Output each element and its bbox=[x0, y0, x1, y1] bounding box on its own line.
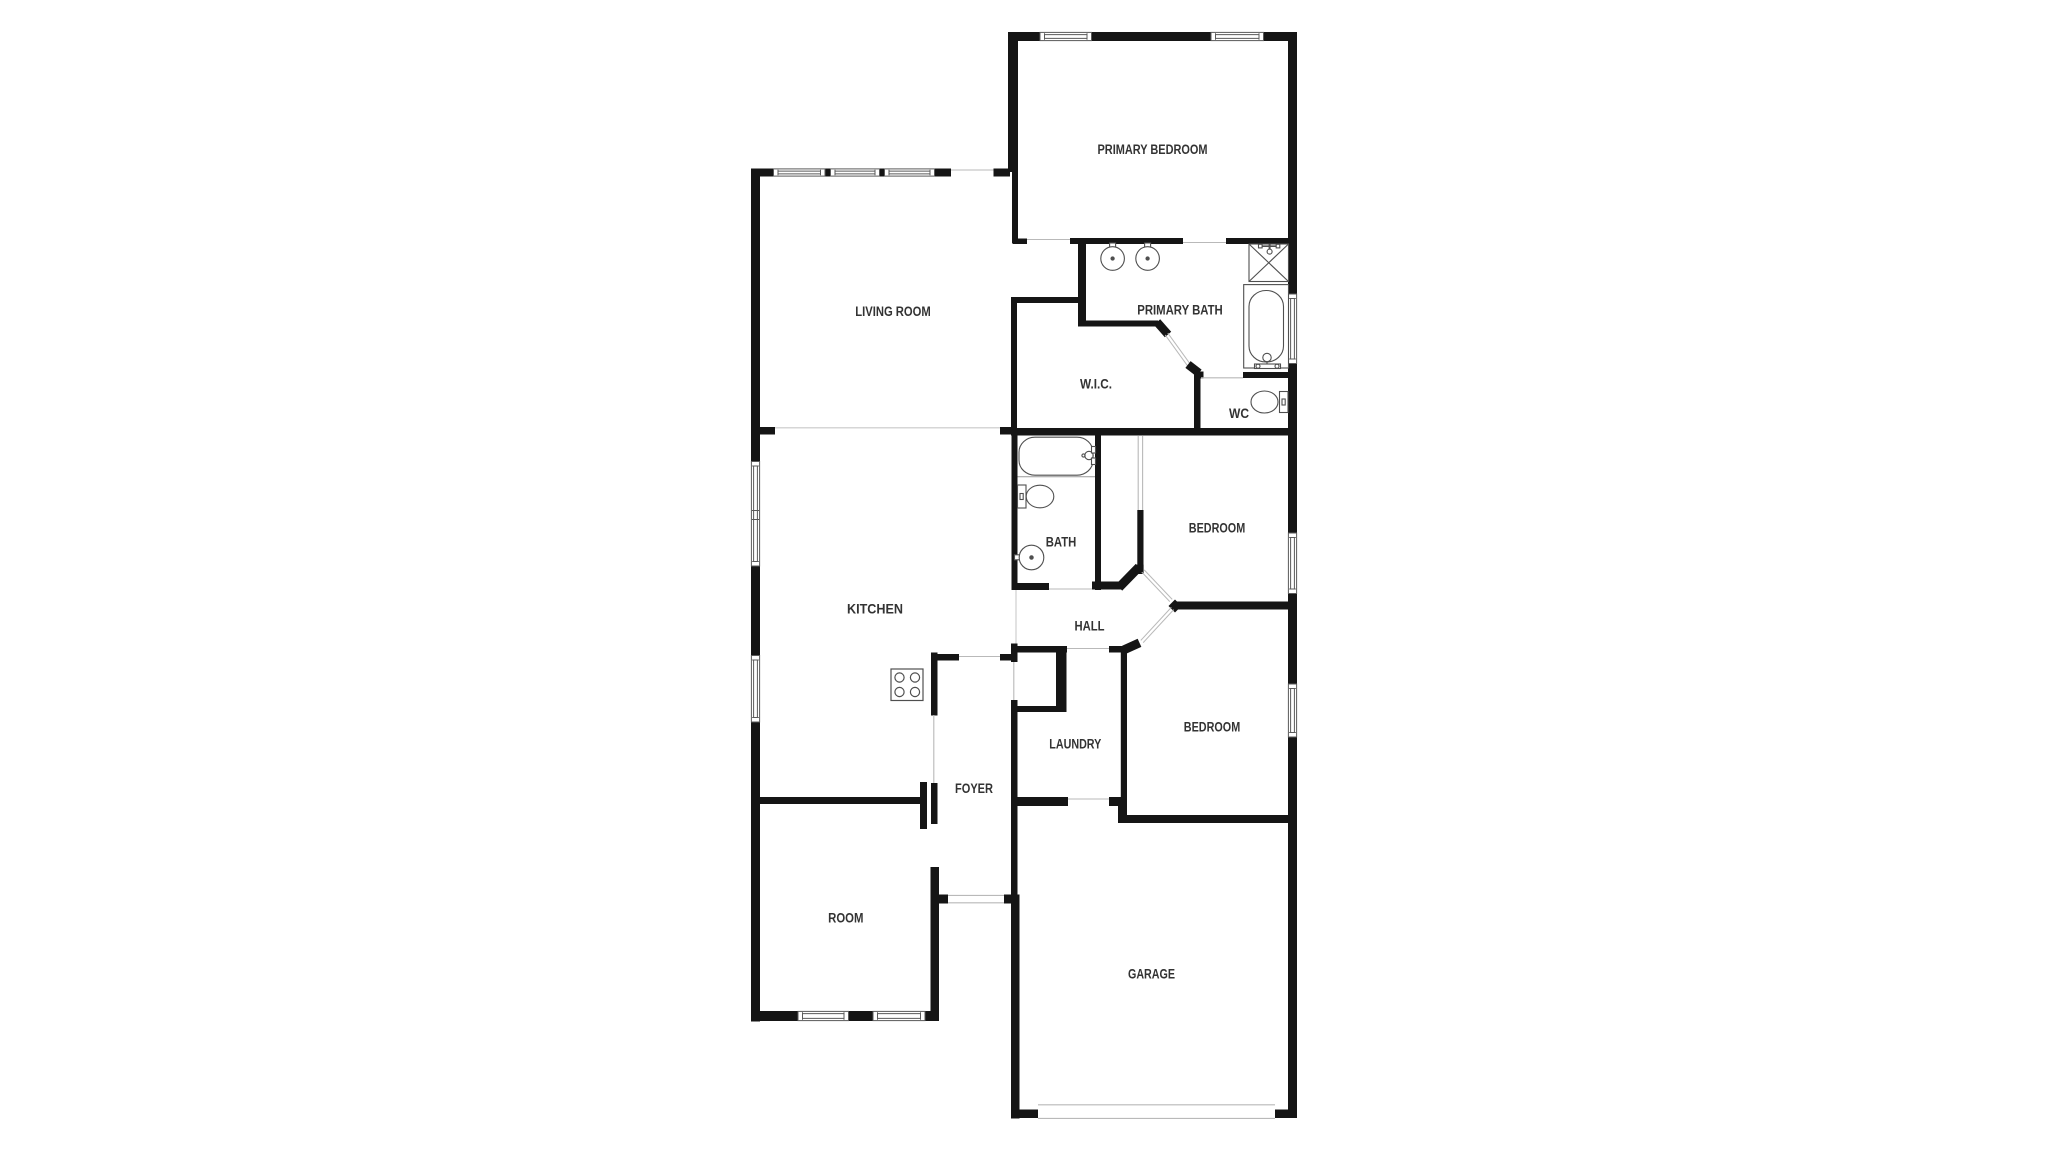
svg-text:LIVING ROOM: LIVING ROOM bbox=[855, 304, 931, 319]
svg-text:W.I.C.: W.I.C. bbox=[1080, 377, 1112, 392]
svg-text:BEDROOM: BEDROOM bbox=[1189, 521, 1245, 536]
svg-text:BEDROOM: BEDROOM bbox=[1184, 720, 1240, 735]
svg-text:PRIMARY BEDROOM: PRIMARY BEDROOM bbox=[1098, 142, 1208, 157]
svg-text:HALL: HALL bbox=[1075, 619, 1105, 634]
svg-text:KITCHEN: KITCHEN bbox=[847, 602, 903, 617]
svg-text:FOYER: FOYER bbox=[955, 781, 993, 796]
svg-text:GARAGE: GARAGE bbox=[1128, 967, 1175, 982]
svg-text:ROOM: ROOM bbox=[828, 910, 863, 925]
svg-text:BATH: BATH bbox=[1046, 535, 1077, 550]
svg-text:PRIMARY BATH: PRIMARY BATH bbox=[1137, 303, 1223, 318]
svg-text:LAUNDRY: LAUNDRY bbox=[1049, 737, 1101, 752]
svg-text:WC: WC bbox=[1229, 406, 1249, 421]
